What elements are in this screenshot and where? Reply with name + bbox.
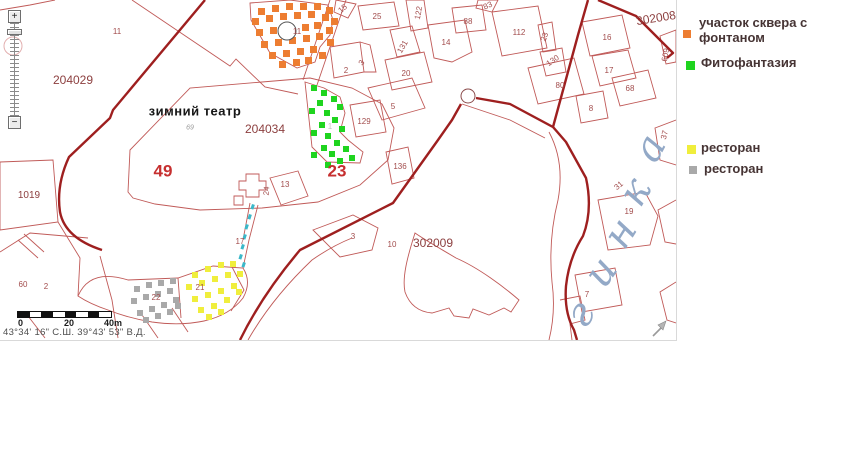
- fountain-square-area-marker: [310, 46, 317, 53]
- stream-mark: [250, 204, 254, 210]
- parcel-boundary-line: [313, 215, 378, 257]
- fitofantasia-area-marker: [321, 145, 327, 151]
- fitofantasia-area-marker: [309, 108, 315, 114]
- map-label: 204029: [53, 74, 93, 86]
- fitofantasia-area-marker: [349, 155, 355, 161]
- fitofantasia-area-marker: [317, 100, 323, 106]
- map-label: 5: [391, 103, 395, 111]
- restaurant-gray-area-marker: [143, 317, 149, 323]
- restaurant-yellow-area-marker: [192, 296, 198, 302]
- fountain-square-area-marker: [258, 8, 265, 15]
- fountain-square-area-marker: [293, 59, 300, 66]
- fitofantasia-area-marker: [334, 140, 340, 146]
- fountain-square-area-marker: [300, 3, 307, 10]
- restaurant-yellow-area-marker: [237, 271, 243, 277]
- map-label: 8: [589, 105, 593, 113]
- stream-mark: [241, 262, 245, 268]
- fitofantasia-area-marker: [321, 90, 327, 96]
- parcel-boundary-line: [234, 196, 243, 205]
- fountain-square-area-marker: [314, 3, 321, 10]
- fitofantasia-area-marker: [324, 110, 330, 116]
- restaurant-gray-area-marker: [143, 294, 149, 300]
- stream-mark: [244, 224, 248, 230]
- map-label: 25: [373, 13, 382, 21]
- map-label: 2: [44, 283, 48, 291]
- restaurant-yellow-area-marker: [218, 288, 224, 294]
- restaurant-yellow-area-marker: [231, 283, 237, 289]
- fountain-square-area-marker: [331, 18, 338, 25]
- legend-swatch: [687, 145, 696, 154]
- map-label: 68: [626, 85, 635, 93]
- map-label: 302009: [413, 237, 453, 249]
- map-canvas[interactable]: 11204029зимний театр69204034491019602222…: [0, 0, 677, 341]
- fountain-square-area-marker: [280, 13, 287, 20]
- parcel-boundary-line: [592, 50, 636, 86]
- legend-swatch: [683, 30, 691, 38]
- stream-mark: [238, 254, 242, 260]
- fountain-square-area-marker: [326, 7, 333, 14]
- zone-boundary-line: [553, 0, 588, 127]
- restaurant-yellow-area-marker: [206, 314, 212, 320]
- fitofantasia-area-marker: [337, 104, 343, 110]
- map-label: 13: [281, 181, 290, 189]
- fountain-square-area-marker: [269, 52, 276, 59]
- restaurant-yellow-area-marker: [186, 284, 192, 290]
- legend-label: ресторан: [704, 161, 763, 176]
- zoom-out-button[interactable]: −: [8, 116, 21, 129]
- fountain-square-area-marker: [326, 27, 333, 34]
- map-label: 129: [357, 118, 370, 126]
- parcel-boundary-line: [172, 308, 188, 332]
- fitofantasia-area-marker: [311, 85, 317, 91]
- parcel-boundary-line: [58, 222, 80, 296]
- restaurant-yellow-area-marker: [192, 272, 198, 278]
- map-label: 14: [442, 39, 451, 47]
- fitofantasia-area-marker: [331, 96, 337, 102]
- restaurant-gray-area-marker: [158, 280, 164, 286]
- map-label: 69: [186, 125, 194, 132]
- zoom-slider-track[interactable]: [10, 23, 19, 116]
- restaurant-gray-area-marker: [146, 282, 152, 288]
- map-label: 1: [328, 123, 332, 131]
- map-label: 49: [154, 163, 173, 180]
- fitofantasia-area-marker: [311, 152, 317, 158]
- map-label: 88: [464, 18, 473, 26]
- map-label: 16: [603, 34, 612, 42]
- restaurant-gray-area-marker: [170, 278, 176, 284]
- map-label: 3: [351, 233, 355, 241]
- map-label: 1019: [18, 191, 40, 201]
- map-label: 11: [113, 28, 121, 36]
- fountain-square-area-marker: [305, 57, 312, 64]
- fitofantasia-area-marker: [329, 151, 335, 157]
- parcel-boundary-line: [462, 104, 545, 138]
- fountain-square-area-marker: [270, 27, 277, 34]
- restaurant-gray-area-marker: [175, 303, 181, 309]
- fountain-square-area-marker: [261, 41, 268, 48]
- fountain-square-area-marker: [319, 52, 326, 59]
- fountain-square-area-marker: [297, 48, 304, 55]
- restaurant-gray-area-marker: [167, 309, 173, 315]
- map-label: зимний театр: [149, 105, 242, 118]
- map-label: 21: [196, 284, 205, 292]
- fitofantasia-area-marker: [339, 126, 345, 132]
- fountain-square-area-marker: [279, 61, 286, 68]
- legend-swatch: [686, 61, 695, 70]
- restaurant-gray-area-marker: [149, 306, 155, 312]
- map-label: 23: [328, 163, 347, 180]
- fountain-square-area-marker: [308, 11, 315, 18]
- zoom-slider-handle[interactable]: [7, 29, 22, 35]
- restaurant-yellow-area-marker: [224, 297, 230, 303]
- map-label: 24: [263, 186, 272, 196]
- zone-boundary-line: [59, 0, 205, 250]
- fountain-square-area-marker: [283, 50, 290, 57]
- fountain-square-area-marker: [275, 39, 282, 46]
- map-label: 204034: [245, 123, 285, 135]
- restaurant-gray-area-marker: [134, 286, 140, 292]
- parcel-boundary-line: [0, 0, 55, 10]
- legend-label: ресторан: [701, 140, 760, 155]
- parcel-boundary-line: [658, 200, 676, 244]
- legend-swatch: [689, 166, 697, 174]
- restaurant-yellow-area-marker: [218, 309, 224, 315]
- fountain-square-area-marker: [286, 3, 293, 10]
- page: { "zoom_control": {"plus": "+", "minus":…: [0, 0, 850, 462]
- restaurant-gray-area-marker: [173, 297, 179, 303]
- map-label: 11: [293, 28, 301, 36]
- restaurant-yellow-area-marker: [205, 266, 211, 272]
- fountain-square-area-marker: [252, 18, 259, 25]
- restaurant-yellow-area-marker: [205, 292, 211, 298]
- map-label: 60: [19, 281, 28, 289]
- fitofantasia-area-marker: [319, 122, 325, 128]
- cursor-icon-head: [658, 321, 666, 330]
- restaurant-yellow-area-marker: [236, 289, 242, 295]
- restaurant-gray-area-marker: [167, 288, 173, 294]
- map-label: 80: [556, 82, 565, 90]
- map-label: 2: [344, 67, 348, 75]
- parcel-boundary-line: [368, 78, 425, 120]
- coordinates-text: 43°34' 16" С.Ш. 39°43' 53" В.Д.: [3, 327, 146, 338]
- map-label: 22: [152, 294, 161, 302]
- fountain-square-area-marker: [294, 12, 301, 19]
- restaurant-gray-area-marker: [161, 302, 167, 308]
- restaurant-yellow-area-marker: [225, 272, 231, 278]
- zoom-in-button[interactable]: +: [8, 10, 21, 23]
- map-label: 112: [513, 29, 526, 37]
- map-label: 7: [585, 291, 589, 299]
- zone-boundary-line: [240, 104, 461, 340]
- map-label: 17: [605, 67, 614, 75]
- fountain-square-area-marker: [256, 29, 263, 36]
- fountain-square-area-marker: [302, 24, 309, 31]
- fountain-square-area-marker: [266, 15, 273, 22]
- restaurant-yellow-area-marker: [212, 276, 218, 282]
- map-label: 19: [625, 208, 634, 216]
- restaurant-gray-area-marker: [155, 313, 161, 319]
- restaurant-yellow-area-marker: [230, 261, 236, 267]
- map-label: 17: [236, 238, 245, 246]
- legend-label: участок сквера сфонтаном: [699, 15, 807, 45]
- map-label: 10: [388, 241, 397, 249]
- map-circle-feature: [461, 89, 475, 103]
- restaurant-gray-area-marker: [137, 310, 143, 316]
- fountain-square-area-marker: [316, 33, 323, 40]
- map-label: 136: [393, 163, 406, 171]
- fitofantasia-area-marker: [343, 146, 349, 152]
- fitofantasia-area-marker: [325, 133, 331, 139]
- fountain-square-area-marker: [327, 39, 334, 46]
- map-label: 20: [402, 70, 411, 78]
- fountain-square-area-marker: [272, 5, 279, 12]
- fountain-square-area-marker: [303, 35, 310, 42]
- restaurant-gray-area-marker: [131, 298, 137, 304]
- parcel-boundary-line: [132, 0, 298, 94]
- restaurant-yellow-area-marker: [218, 262, 224, 268]
- fitofantasia-area-marker: [311, 130, 317, 136]
- fitofantasia-area-marker: [332, 117, 338, 123]
- parcel-boundary-line: [660, 282, 676, 323]
- restaurant-yellow-area-marker: [211, 303, 217, 309]
- scale-bar: [17, 311, 112, 318]
- legend-label: Фитофантазия: [701, 55, 796, 70]
- restaurant-yellow-area-marker: [198, 307, 204, 313]
- fountain-square-area-marker: [322, 14, 329, 21]
- fountain-square-area-marker: [314, 22, 321, 29]
